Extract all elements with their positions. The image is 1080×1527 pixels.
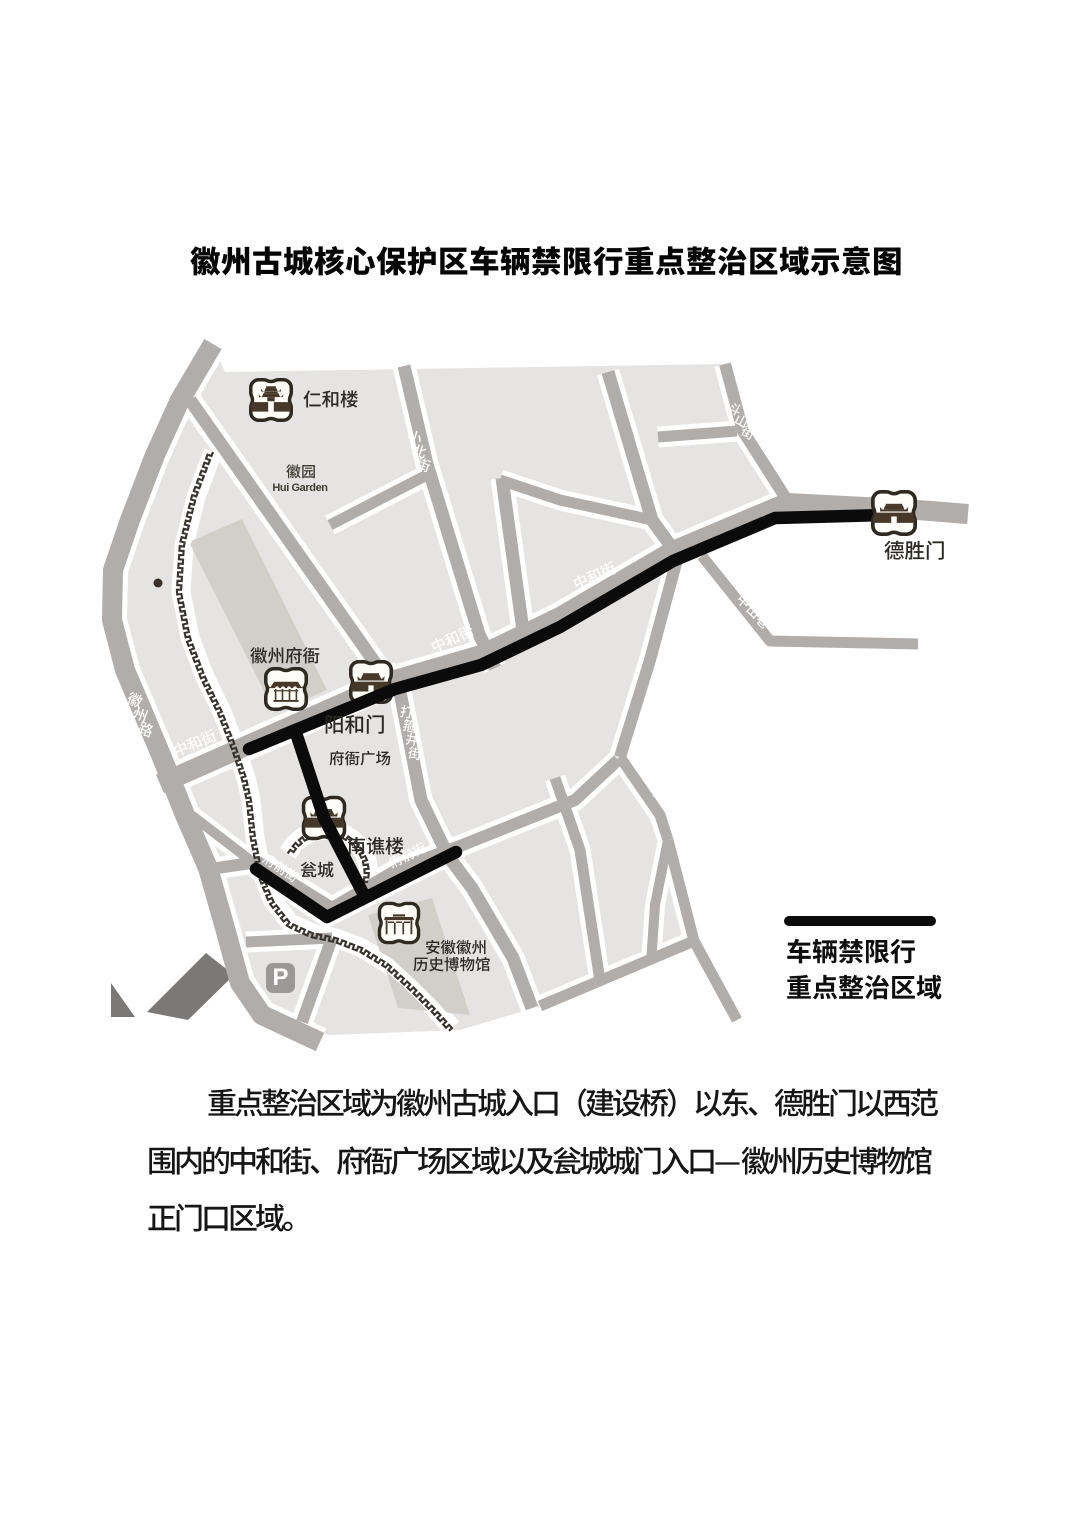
svg-text:Hui Garden: Hui Garden [272, 482, 328, 494]
svg-text:P: P [272, 964, 288, 991]
